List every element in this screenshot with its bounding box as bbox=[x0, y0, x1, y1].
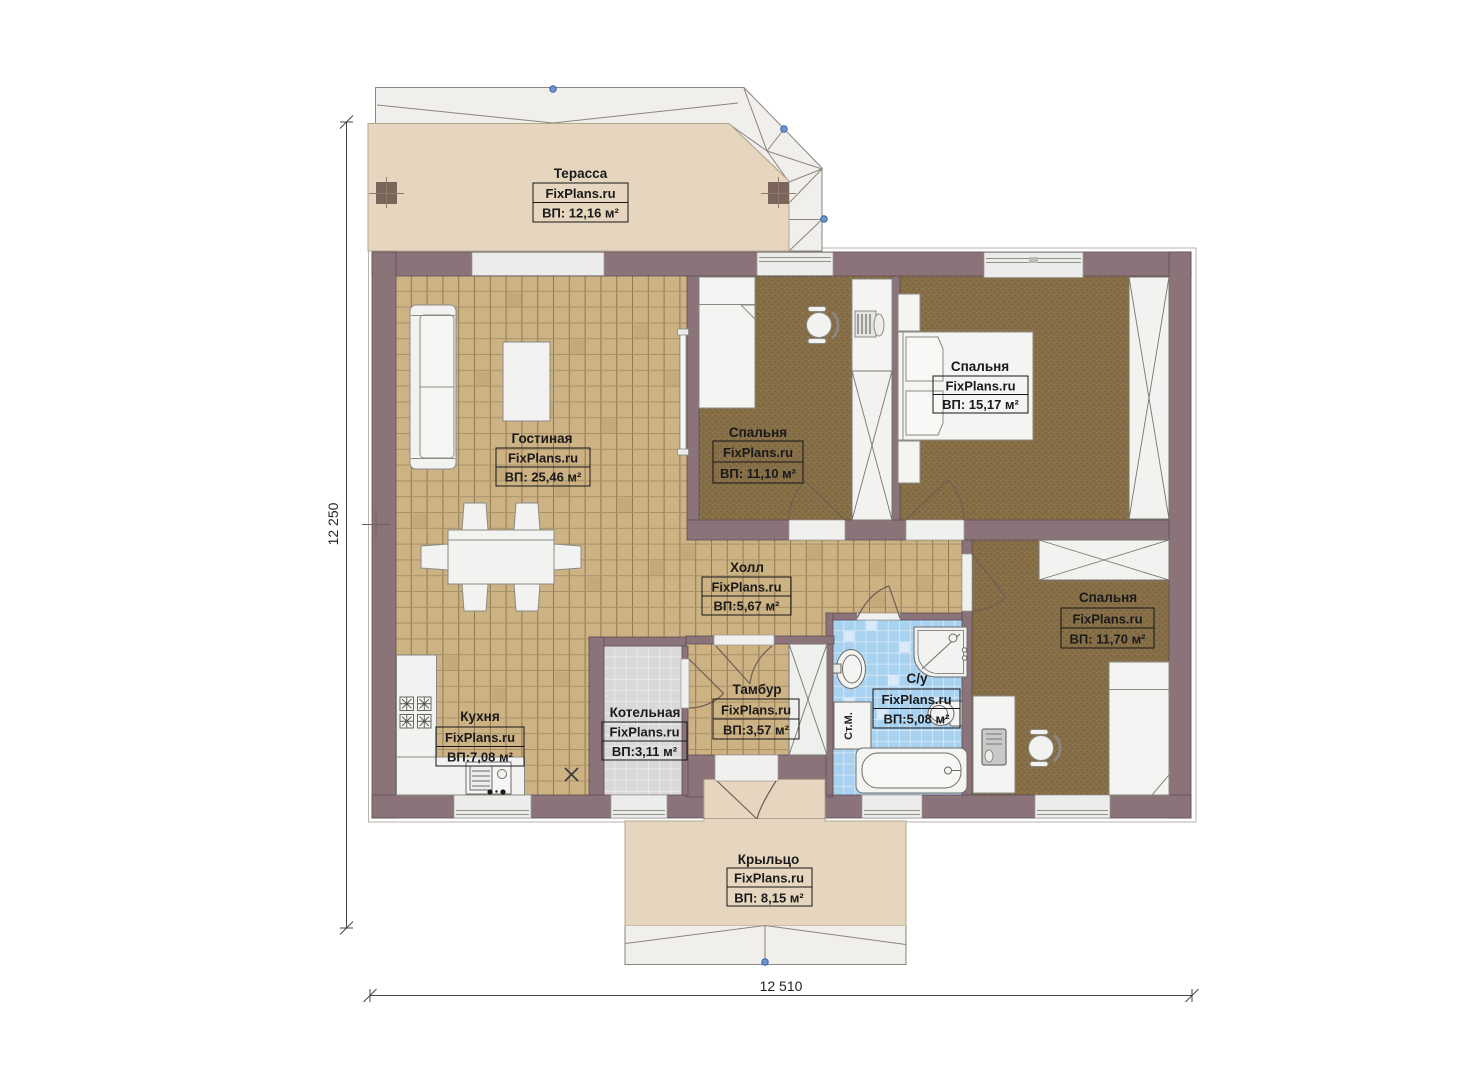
svg-text:FixPlans.ru: FixPlans.ru bbox=[723, 445, 793, 460]
svg-text:ВП: 8,15 м²: ВП: 8,15 м² bbox=[734, 891, 804, 906]
svg-text:С/у: С/у bbox=[906, 671, 928, 686]
svg-text:12 510: 12 510 bbox=[760, 978, 803, 994]
svg-text:ВП:3,57 м²: ВП:3,57 м² bbox=[723, 723, 790, 738]
svg-text:ВП: 15,17 м²: ВП: 15,17 м² bbox=[942, 397, 1019, 412]
svg-text:FixPlans.ru: FixPlans.ru bbox=[445, 730, 515, 745]
svg-text:Кухня: Кухня bbox=[460, 709, 499, 724]
svg-text:Терасса: Терасса bbox=[554, 166, 608, 181]
svg-text:ВП: 11,70 м²: ВП: 11,70 м² bbox=[1069, 632, 1146, 647]
svg-text:FixPlans.ru: FixPlans.ru bbox=[721, 703, 791, 718]
svg-text:12 250: 12 250 bbox=[325, 502, 341, 545]
svg-text:FixPlans.ru: FixPlans.ru bbox=[1072, 612, 1142, 627]
svg-text:FixPlans.ru: FixPlans.ru bbox=[609, 725, 679, 740]
svg-text:Спальня: Спальня bbox=[951, 359, 1009, 374]
svg-text:Тамбур: Тамбур bbox=[733, 682, 782, 697]
svg-text:ВП:3,11 м²: ВП:3,11 м² bbox=[612, 744, 678, 759]
svg-text:FixPlans.ru: FixPlans.ru bbox=[711, 580, 781, 595]
svg-text:ВП:5,67 м²: ВП:5,67 м² bbox=[714, 599, 781, 614]
svg-text:ВП:5,08 м²: ВП:5,08 м² bbox=[884, 712, 951, 727]
svg-text:Спальня: Спальня bbox=[729, 425, 787, 440]
svg-text:FixPlans.ru: FixPlans.ru bbox=[881, 692, 951, 707]
svg-text:FixPlans.ru: FixPlans.ru bbox=[945, 379, 1015, 394]
svg-text:Гостиная: Гостиная bbox=[511, 431, 572, 446]
svg-text:Ст.М.: Ст.М. bbox=[843, 712, 855, 740]
svg-text:ВП: 12,16 м²: ВП: 12,16 м² bbox=[542, 206, 619, 221]
svg-text:FixPlans.ru: FixPlans.ru bbox=[508, 451, 578, 466]
svg-text:Спальня: Спальня bbox=[1079, 590, 1137, 605]
svg-text:Котельная: Котельная bbox=[610, 705, 681, 720]
svg-text:FixPlans.ru: FixPlans.ru bbox=[545, 186, 615, 201]
svg-text:ВП: 25,46 м²: ВП: 25,46 м² bbox=[505, 470, 582, 485]
svg-text:Крыльцо: Крыльцо bbox=[738, 852, 799, 867]
svg-text:ВП: 11,10 м²: ВП: 11,10 м² bbox=[720, 466, 797, 481]
svg-text:FixPlans.ru: FixPlans.ru bbox=[734, 871, 804, 886]
svg-text:Холл: Холл bbox=[730, 560, 764, 575]
svg-text:ВП:7,08 м²: ВП:7,08 м² bbox=[447, 750, 514, 765]
